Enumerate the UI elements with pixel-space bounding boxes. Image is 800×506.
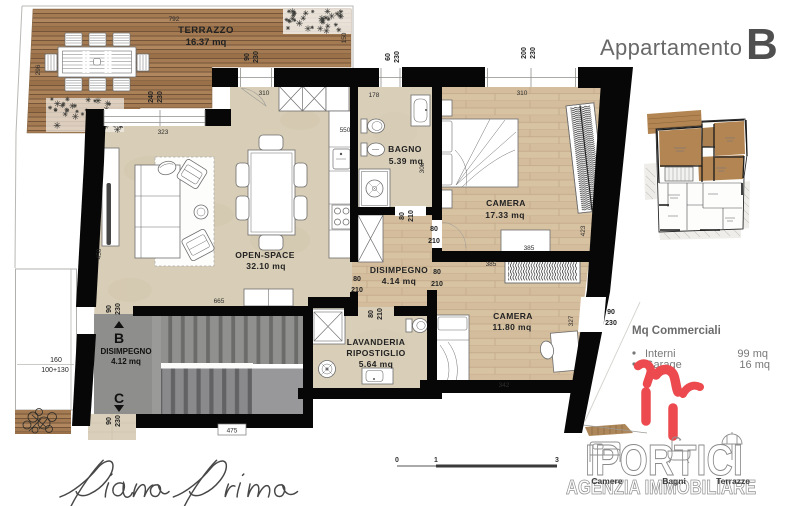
svg-text:B: B xyxy=(114,330,124,346)
svg-text:310: 310 xyxy=(259,90,270,97)
svg-text:BAGNO: BAGNO xyxy=(388,144,422,154)
svg-text:Terrazze: Terrazze xyxy=(716,476,750,486)
svg-text:308: 308 xyxy=(419,162,426,173)
svg-text:296: 296 xyxy=(35,64,42,75)
svg-text:665: 665 xyxy=(214,298,225,305)
svg-text:OPEN-SPACE: OPEN-SPACE xyxy=(235,250,295,260)
svg-text:80: 80 xyxy=(368,310,375,318)
svg-text:160: 160 xyxy=(50,357,62,364)
svg-text:B: B xyxy=(746,20,778,69)
svg-text:TERRAZZO: TERRAZZO xyxy=(178,25,234,36)
svg-text:792: 792 xyxy=(169,16,180,23)
svg-text:210: 210 xyxy=(431,281,443,288)
svg-text:90: 90 xyxy=(244,53,251,61)
svg-text:230: 230 xyxy=(115,303,122,315)
svg-text:385: 385 xyxy=(486,261,497,268)
svg-text:60: 60 xyxy=(385,53,392,61)
svg-text:200: 200 xyxy=(521,47,528,59)
svg-text:323: 323 xyxy=(158,129,169,136)
svg-text:DISIMPEGNO: DISIMPEGNO xyxy=(100,347,151,356)
svg-text:150: 150 xyxy=(341,32,348,43)
svg-text:5.64 mq: 5.64 mq xyxy=(359,359,393,369)
svg-text:342: 342 xyxy=(499,382,510,389)
svg-text:90: 90 xyxy=(106,305,113,313)
svg-text:327: 327 xyxy=(568,315,575,326)
svg-text:0: 0 xyxy=(395,457,399,464)
svg-text:16 mq: 16 mq xyxy=(739,359,770,371)
svg-text:4.12 mq: 4.12 mq xyxy=(111,357,141,366)
svg-text:210: 210 xyxy=(408,210,415,222)
svg-text:C: C xyxy=(114,390,124,406)
svg-text:16.37 mq: 16.37 mq xyxy=(186,37,227,48)
svg-text:90: 90 xyxy=(607,309,615,316)
svg-text:240: 240 xyxy=(148,91,155,103)
svg-text:Camere: Camere xyxy=(591,476,622,486)
svg-text:Appartamento: Appartamento xyxy=(600,35,742,60)
svg-text:17.33 mq: 17.33 mq xyxy=(485,210,525,220)
svg-text:230: 230 xyxy=(605,320,617,327)
svg-text:80: 80 xyxy=(399,212,406,220)
svg-text:475: 475 xyxy=(227,428,238,435)
svg-text:210: 210 xyxy=(428,238,440,245)
svg-text:210: 210 xyxy=(351,287,363,294)
svg-text:230: 230 xyxy=(394,51,401,63)
svg-text:450: 450 xyxy=(96,248,103,259)
svg-text:CAMERA: CAMERA xyxy=(493,311,533,321)
svg-text:210: 210 xyxy=(377,308,384,320)
svg-text:230: 230 xyxy=(115,415,122,427)
svg-text:4.14 mq: 4.14 mq xyxy=(382,276,416,286)
svg-text:Mq Commerciali: Mq Commerciali xyxy=(632,325,721,337)
svg-text:230: 230 xyxy=(530,47,537,59)
svg-text:Bagni: Bagni xyxy=(662,476,686,486)
svg-text:230: 230 xyxy=(253,51,260,63)
svg-text:CAMERA: CAMERA xyxy=(486,198,526,208)
svg-text:423: 423 xyxy=(580,225,587,236)
svg-text:1: 1 xyxy=(434,457,438,464)
svg-text:11.80 mq: 11.80 mq xyxy=(492,322,531,332)
svg-text:LAVANDERIA: LAVANDERIA xyxy=(347,337,405,347)
svg-text:80: 80 xyxy=(353,276,361,283)
svg-text:385: 385 xyxy=(524,245,535,252)
svg-text:550: 550 xyxy=(340,127,351,134)
svg-text:178: 178 xyxy=(369,92,380,99)
svg-text:RIPOSTIGLIO: RIPOSTIGLIO xyxy=(346,348,405,358)
svg-text:DISIMPEGNO: DISIMPEGNO xyxy=(370,265,428,275)
svg-text:32.10 mq: 32.10 mq xyxy=(246,261,286,271)
svg-text:230: 230 xyxy=(157,91,164,103)
svg-text:100+130: 100+130 xyxy=(41,367,69,374)
svg-text:3: 3 xyxy=(555,457,559,464)
svg-text:310: 310 xyxy=(517,90,528,97)
svg-text:80: 80 xyxy=(433,269,441,276)
svg-text:80: 80 xyxy=(430,226,438,233)
svg-text:90: 90 xyxy=(106,417,113,425)
